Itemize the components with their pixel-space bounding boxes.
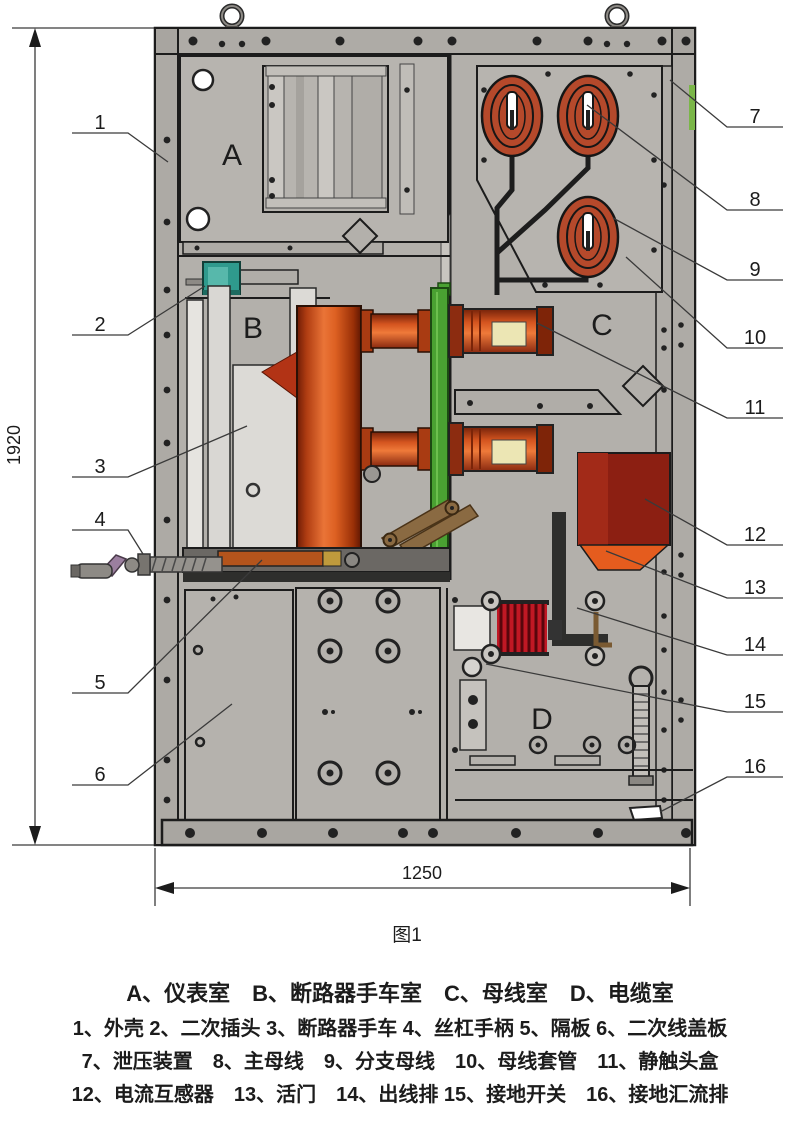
truck-base xyxy=(183,548,450,582)
arrow-up-icon xyxy=(29,28,41,47)
svg-text:10: 10 xyxy=(744,327,766,349)
current-transformer xyxy=(578,453,670,570)
partition-plate xyxy=(218,551,323,566)
earthing-switch-rod xyxy=(629,667,653,785)
svg-text:16: 16 xyxy=(744,756,766,778)
switchgear-cross-section-diagram: 1920 1250 xyxy=(0,0,800,1123)
bottom-rail xyxy=(162,820,692,845)
arrow-down-icon xyxy=(29,826,41,845)
callout-4: 4 xyxy=(72,509,143,554)
svg-text:9: 9 xyxy=(749,259,760,281)
arrow-right-icon xyxy=(671,882,690,894)
compartment-a-label: A xyxy=(222,139,242,172)
panel-hole xyxy=(187,208,209,230)
instrument-compartment: A xyxy=(180,56,448,254)
svg-text:8: 8 xyxy=(749,189,760,211)
secondary-wiring-cover xyxy=(185,590,293,838)
svg-text:5: 5 xyxy=(94,672,105,694)
busbar-bushing xyxy=(558,76,618,156)
busbar-bushing xyxy=(482,76,542,156)
compartment-c-label: C xyxy=(591,309,613,342)
svg-text:15: 15 xyxy=(744,691,766,713)
height-dimension-value: 1920 xyxy=(4,425,24,465)
svg-text:14: 14 xyxy=(744,634,766,656)
svg-text:13: 13 xyxy=(744,577,766,599)
front-bolted-panel xyxy=(296,588,458,820)
panel-clip xyxy=(689,85,695,130)
svg-text:11: 11 xyxy=(745,397,766,419)
width-dimension: 1250 xyxy=(155,848,690,906)
legend-parts-line3: 12、电流互感器 13、活门 14、出线排 15、接地开关 16、接地汇流排 xyxy=(72,1082,729,1106)
svg-text:1: 1 xyxy=(94,112,105,134)
busbar-bushing xyxy=(558,197,618,277)
figure-caption: 图1 xyxy=(392,925,422,946)
static-contact-box xyxy=(449,423,553,475)
static-contact-box xyxy=(449,305,553,357)
left-wall xyxy=(155,54,178,845)
svg-text:7: 7 xyxy=(749,106,760,128)
legend: A、仪表室 B、断路器手车室 C、母线室 D、电缆室 1、外壳 2、二次插头 3… xyxy=(72,981,729,1106)
svg-text:6: 6 xyxy=(94,764,105,786)
legend-parts-line1: 1、外壳 2、二次插头 3、断路器手车 4、丝杠手柄 5、隔板 6、二次线盖板 xyxy=(73,1016,729,1040)
svg-text:4: 4 xyxy=(94,509,105,531)
arrow-left-icon xyxy=(155,882,174,894)
legend-parts-line2: 7、泄压装置 8、主母线 9、分支母线 10、母线套管 11、静触头盒 xyxy=(82,1049,720,1073)
svg-text:3: 3 xyxy=(94,456,105,478)
height-dimension: 1920 xyxy=(4,28,160,845)
width-dimension-value: 1250 xyxy=(402,863,442,883)
compartment-d-label: D xyxy=(531,703,553,736)
grounding-busbar xyxy=(630,806,662,820)
compartment-b-label: B xyxy=(243,312,263,345)
svg-text:12: 12 xyxy=(744,524,766,546)
panel-hole xyxy=(193,70,213,90)
support-rail xyxy=(455,390,620,414)
svg-text:2: 2 xyxy=(94,314,105,336)
top-rail xyxy=(155,28,695,54)
callout-1: 1 xyxy=(72,112,168,162)
legend-compartments: A、仪表室 B、断路器手车室 C、母线室 D、电缆室 xyxy=(126,981,674,1006)
